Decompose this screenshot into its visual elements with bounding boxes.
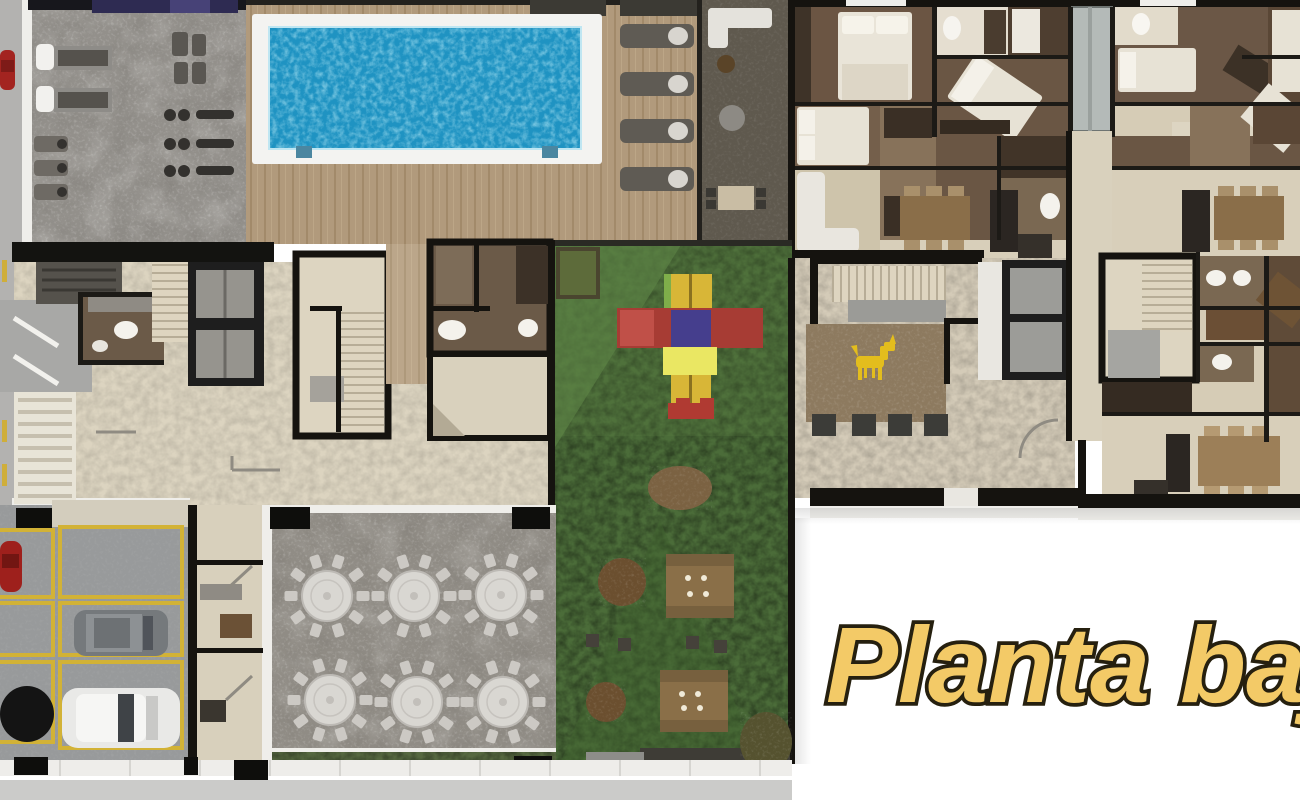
svg-text:Planta baj: Planta baj	[826, 604, 1300, 725]
